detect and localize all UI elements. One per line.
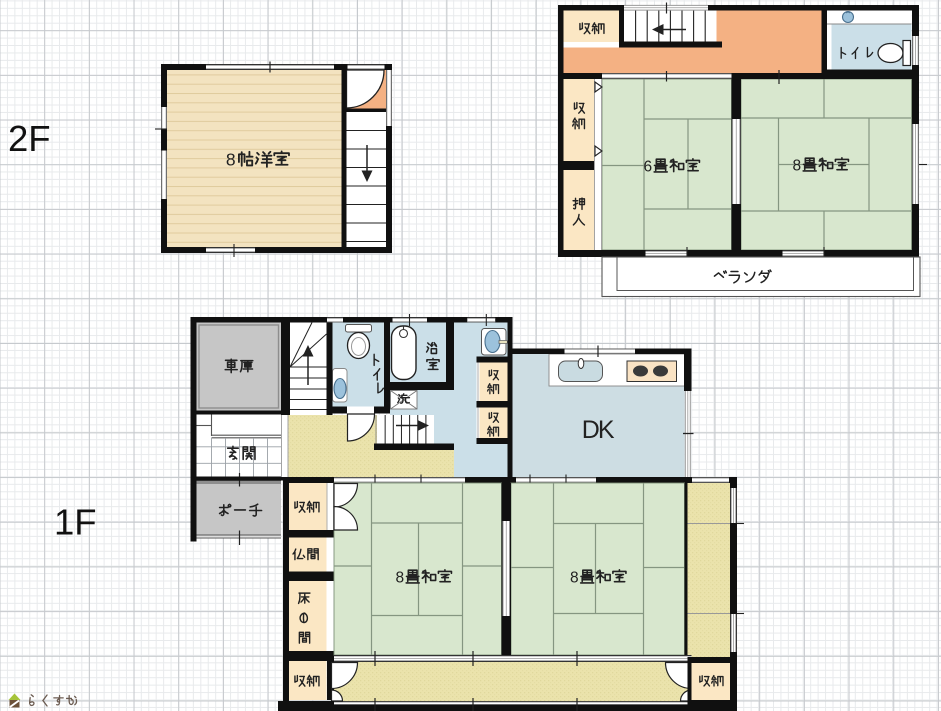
svg-text:8: 8 <box>395 569 404 586</box>
svg-text:8: 8 <box>792 157 801 174</box>
svg-text:2F: 2F <box>8 118 51 159</box>
svg-text:8: 8 <box>570 569 579 586</box>
svg-text:6: 6 <box>643 158 652 175</box>
svg-text:K: K <box>598 416 615 444</box>
svg-text:1F: 1F <box>54 502 97 543</box>
svg-text:8: 8 <box>226 150 236 170</box>
